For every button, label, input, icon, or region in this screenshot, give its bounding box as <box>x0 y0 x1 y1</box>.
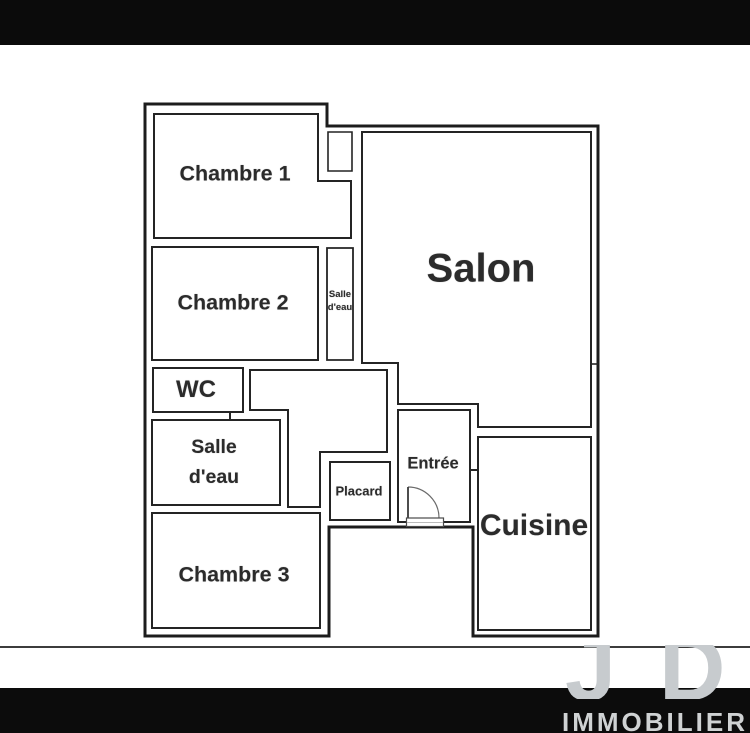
room-label-salle-eau: Salle d'eau <box>189 432 239 492</box>
room-label-line: Salle <box>189 432 239 462</box>
room-label-cuisine: Cuisine <box>480 509 588 543</box>
floorplan-page: Chambre 1 Chambre 2 Salle d'eau Salon WC… <box>0 0 750 733</box>
room-label-chambre-2: Chambre 2 <box>177 291 288 316</box>
room-label-salon: Salon <box>427 247 536 292</box>
closet-box <box>328 132 352 171</box>
room-label-chambre-1: Chambre 1 <box>179 162 290 187</box>
watermark-letter: D <box>659 645 725 699</box>
floorplan-walls <box>0 0 750 733</box>
room-label-wc: WC <box>176 376 216 404</box>
room-label-chambre-3: Chambre 3 <box>178 563 289 588</box>
room-label-line: d'eau <box>328 302 352 315</box>
agency-logo-watermark: J D <box>525 645 750 699</box>
room-label-salle-eau-petite: Salle d'eau <box>328 289 352 315</box>
room-label-entree: Entrée <box>407 455 458 474</box>
room-label-line: Salle <box>328 289 352 302</box>
watermark-letter: J <box>565 645 616 699</box>
room-label-line: d'eau <box>189 462 239 492</box>
agency-brand-text: IMMOBILIER <box>562 707 748 733</box>
room-label-placard: Placard <box>336 484 383 499</box>
door-swing-arc <box>408 487 439 518</box>
